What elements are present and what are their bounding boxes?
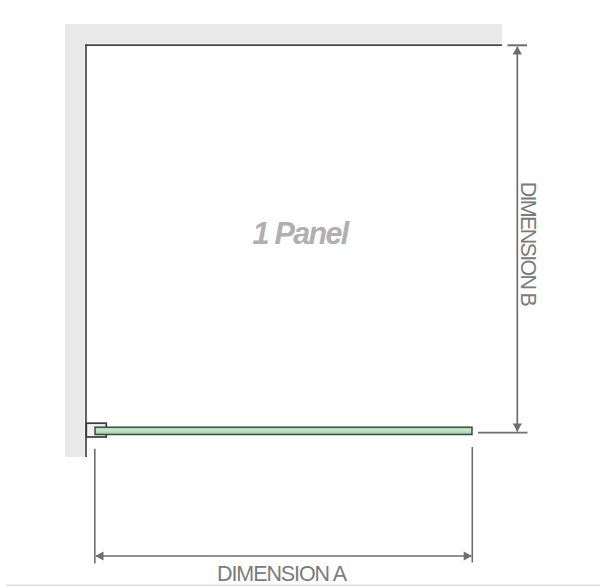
svg-text:1 Panel: 1 Panel: [253, 216, 350, 250]
svg-text:DIMENSION A: DIMENSION A: [217, 562, 348, 586]
svg-text:DIMENSION B: DIMENSION B: [516, 182, 540, 307]
